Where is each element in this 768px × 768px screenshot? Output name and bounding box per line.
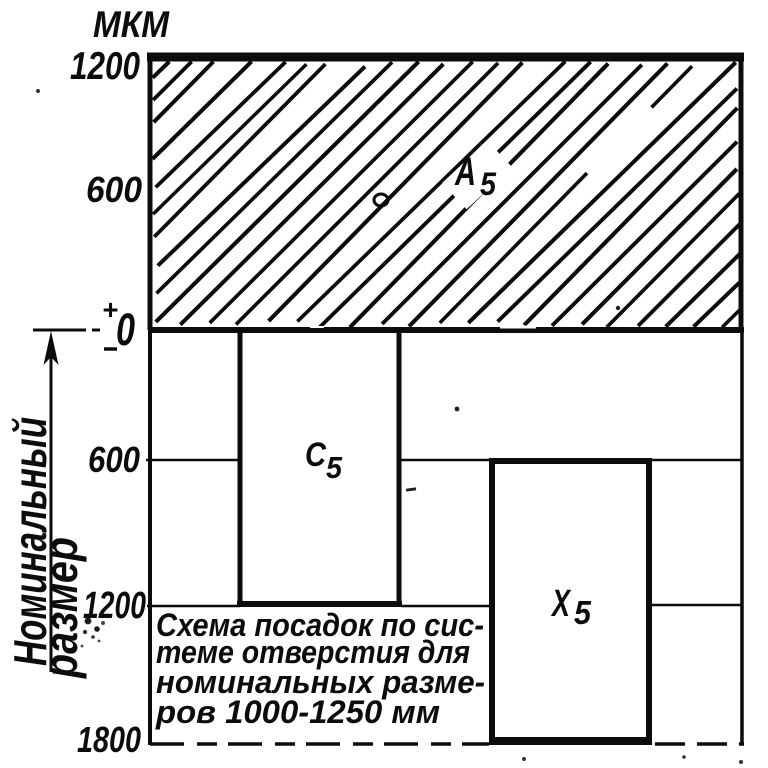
svg-text:C: C [305, 436, 326, 474]
svg-text:1200: 1200 [70, 45, 140, 88]
svg-text:X: X [551, 583, 572, 625]
svg-text:5: 5 [480, 166, 497, 202]
svg-text:размер: размер [35, 537, 87, 680]
svg-text:МКМ: МКМ [93, 4, 170, 45]
svg-text:5: 5 [574, 594, 592, 631]
svg-text:1800: 1800 [77, 719, 141, 760]
svg-text:ров 1000-1250 мм: ров 1000-1250 мм [155, 694, 440, 730]
svg-text:600: 600 [86, 169, 142, 210]
svg-text:A: A [454, 150, 476, 194]
svg-text:1200: 1200 [83, 585, 146, 627]
svg-text:0: 0 [116, 304, 135, 355]
svg-text:600: 600 [88, 439, 140, 480]
svg-text:5: 5 [326, 450, 343, 485]
